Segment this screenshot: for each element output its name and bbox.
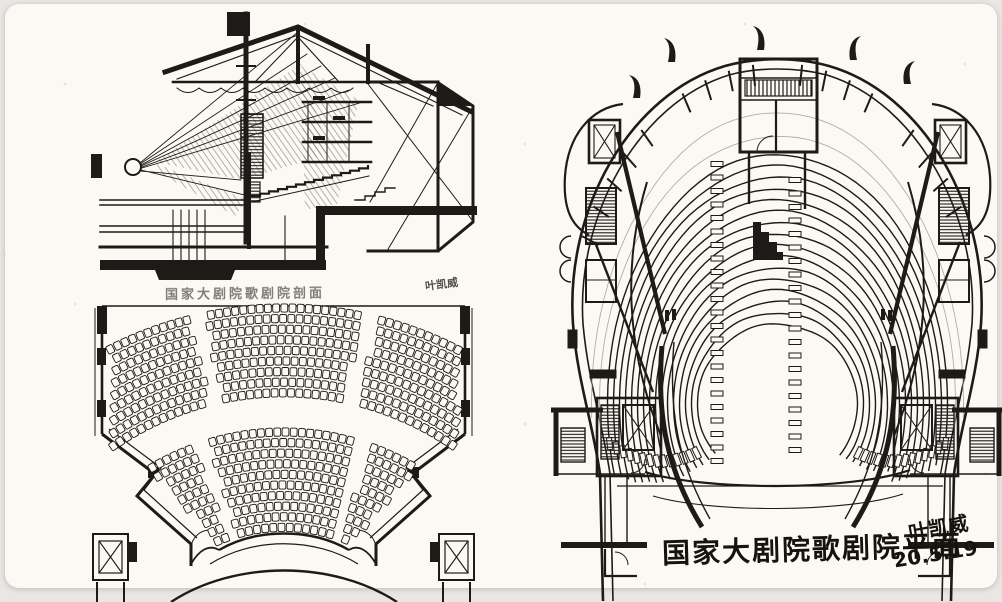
seat <box>247 316 255 325</box>
seat <box>378 382 387 392</box>
seat <box>310 451 318 460</box>
wall-mullion-tick <box>902 130 913 146</box>
seat <box>329 475 338 485</box>
seat <box>255 390 262 399</box>
seat <box>188 336 197 346</box>
seat <box>338 434 346 444</box>
seat <box>273 470 280 478</box>
seat <box>385 385 394 395</box>
seat <box>297 471 304 480</box>
seat <box>299 503 307 512</box>
seat <box>232 475 240 484</box>
seat <box>313 472 321 481</box>
seat <box>328 317 336 326</box>
seating-row-arc <box>674 279 882 472</box>
seat <box>265 471 272 480</box>
wall-mullion-tick <box>641 130 652 146</box>
seat <box>268 346 275 354</box>
seat <box>236 453 244 462</box>
seat <box>249 369 257 378</box>
seat <box>183 393 192 403</box>
seat <box>272 378 279 386</box>
seat <box>227 498 236 508</box>
seat <box>310 526 318 535</box>
seat <box>283 460 290 468</box>
seat <box>254 482 262 491</box>
seating-row-arc <box>692 314 864 460</box>
seat <box>167 320 176 330</box>
seat <box>328 519 337 529</box>
seat <box>267 460 274 469</box>
seat <box>326 529 335 539</box>
seat <box>288 315 295 323</box>
seat <box>173 329 182 339</box>
seat <box>285 492 292 500</box>
seat <box>219 340 227 349</box>
seat <box>305 471 313 480</box>
seat <box>325 496 334 506</box>
seat <box>401 323 410 333</box>
seat <box>280 438 287 446</box>
seat <box>264 378 271 387</box>
aisle-step-mark <box>711 229 723 234</box>
seat <box>368 390 377 400</box>
seat <box>330 509 339 519</box>
aisle-step-mark <box>640 453 647 466</box>
seating-row-arc <box>680 289 876 468</box>
seat <box>254 326 261 335</box>
seat <box>322 370 330 379</box>
seat <box>234 464 242 473</box>
seat <box>179 349 188 359</box>
seat <box>207 310 215 319</box>
seat <box>273 304 280 312</box>
aisle-step-mark <box>789 191 801 196</box>
seat <box>238 485 246 494</box>
seat <box>244 337 252 346</box>
seat <box>246 483 254 492</box>
seat <box>168 386 177 396</box>
seat <box>245 326 253 335</box>
seating-row-arc <box>632 200 924 483</box>
seat <box>338 372 346 381</box>
seat <box>375 404 384 414</box>
aisle-step-mark <box>789 286 801 291</box>
seat <box>339 467 348 477</box>
seat <box>183 315 192 325</box>
seat <box>237 528 246 538</box>
seat <box>244 451 252 460</box>
seat <box>250 358 258 367</box>
seat <box>350 342 358 351</box>
seat <box>235 349 243 358</box>
seat <box>371 369 380 379</box>
architectural-sketch <box>5 4 1002 602</box>
seat <box>242 462 250 471</box>
seat <box>214 320 222 329</box>
aisle-step-mark <box>789 434 801 439</box>
seat <box>271 438 278 446</box>
seat <box>332 498 341 508</box>
seat <box>232 371 240 380</box>
aisle-step-mark <box>908 453 915 466</box>
seat <box>388 363 397 373</box>
seat <box>299 357 306 366</box>
seat <box>336 318 344 327</box>
aisle-step-mark <box>633 451 640 464</box>
seat <box>238 316 246 325</box>
seat <box>300 347 307 356</box>
seat <box>322 431 330 440</box>
seat <box>333 350 341 359</box>
seat <box>235 496 243 506</box>
seat <box>293 336 300 344</box>
seat <box>263 439 270 448</box>
seat <box>291 502 298 511</box>
seat <box>321 306 329 315</box>
seat <box>252 493 260 502</box>
seat <box>214 446 223 456</box>
pencil-construction-arcs <box>592 113 964 451</box>
seat <box>383 406 392 416</box>
seat <box>398 344 407 354</box>
seat <box>278 523 285 531</box>
seat <box>289 378 296 386</box>
seat <box>229 328 237 337</box>
seat <box>314 430 322 439</box>
seat <box>182 404 191 414</box>
seat <box>269 336 276 344</box>
seat <box>290 368 297 376</box>
seat <box>323 359 331 368</box>
seat <box>218 467 227 477</box>
seat <box>370 380 379 390</box>
seat <box>206 321 214 330</box>
seat <box>352 321 360 330</box>
seat <box>372 358 381 368</box>
seat <box>263 389 270 398</box>
seat <box>228 454 236 463</box>
seat <box>283 502 290 510</box>
seat <box>274 502 281 510</box>
seat <box>229 486 238 496</box>
aisle-step-mark <box>711 243 723 248</box>
seat <box>230 392 238 401</box>
seat <box>260 492 268 501</box>
aisle-step-mark <box>711 364 723 369</box>
seat <box>407 336 416 346</box>
seat <box>288 389 295 397</box>
seat <box>220 456 229 466</box>
wall-mullion-tick <box>865 94 873 113</box>
seat <box>272 513 279 522</box>
orchestra-pit <box>171 530 397 602</box>
seat <box>317 495 325 504</box>
seat <box>311 483 319 492</box>
seat <box>233 360 241 369</box>
seat <box>289 304 296 312</box>
seat <box>377 316 386 326</box>
seat <box>290 428 297 436</box>
seat <box>384 395 393 405</box>
seat <box>308 461 316 470</box>
seat <box>323 463 331 472</box>
seat <box>374 348 383 358</box>
sketch-paper: 国家大剧院歌剧院剖面 叶凯威 国家大剧院歌剧院平面 叶凯威 20.5.19 <box>5 4 997 588</box>
aisle-step-mark <box>789 245 801 250</box>
seat <box>255 315 262 324</box>
seat <box>296 315 303 323</box>
seat <box>262 325 269 334</box>
seat <box>384 329 393 339</box>
seat <box>287 325 294 333</box>
seat <box>270 325 277 333</box>
seat <box>342 341 350 350</box>
aisle-step-mark <box>711 445 723 450</box>
seat <box>281 470 288 478</box>
seat <box>318 527 327 537</box>
seat <box>276 346 283 354</box>
aisle-step-mark <box>789 367 801 372</box>
seat <box>216 373 224 382</box>
seat <box>266 502 273 511</box>
seat <box>310 337 317 346</box>
seat <box>280 314 287 322</box>
seat <box>387 374 396 384</box>
seat <box>200 377 209 387</box>
aisle-step-mark <box>789 178 801 183</box>
stalls-seats <box>105 304 462 546</box>
seat <box>247 379 255 388</box>
seat <box>300 460 307 469</box>
aisle-step-mark <box>711 162 723 167</box>
seat <box>364 356 373 366</box>
seat <box>330 432 338 441</box>
seat <box>196 463 205 473</box>
seat <box>177 372 186 382</box>
seat <box>334 339 342 348</box>
seat <box>344 320 352 329</box>
seat <box>293 492 300 501</box>
seat <box>243 494 251 503</box>
seat <box>175 318 184 328</box>
seat <box>250 461 258 470</box>
aisle-step-mark <box>711 378 723 383</box>
seat <box>278 449 285 457</box>
seat <box>381 350 390 360</box>
seat <box>287 481 294 489</box>
seat <box>296 439 303 448</box>
seat <box>269 449 276 458</box>
seat <box>215 309 223 318</box>
seat <box>363 367 372 377</box>
seat <box>305 379 312 388</box>
aisle-step-mark <box>711 405 723 410</box>
seat <box>321 474 329 483</box>
seat <box>178 361 187 371</box>
seat <box>320 441 328 450</box>
seat <box>257 368 264 377</box>
seat <box>367 454 376 464</box>
seat <box>281 304 288 312</box>
seat <box>264 513 272 522</box>
seat <box>212 458 221 468</box>
seat <box>230 317 238 326</box>
seat <box>350 493 359 503</box>
seat <box>213 331 221 340</box>
aisle-step-mark <box>789 421 801 426</box>
seat <box>228 339 236 348</box>
seat <box>341 534 350 544</box>
seat <box>308 347 315 356</box>
seat <box>329 307 337 316</box>
seat <box>298 368 305 377</box>
seat <box>262 481 269 490</box>
seating-row-arc <box>600 137 956 452</box>
seat <box>271 315 278 323</box>
seat <box>253 525 261 534</box>
aisle-step-mark <box>711 256 723 261</box>
seat <box>311 326 318 335</box>
aisle-step-mark <box>711 324 723 329</box>
seat <box>375 337 384 347</box>
seat <box>385 318 394 328</box>
seat <box>263 315 270 324</box>
seat <box>275 357 282 365</box>
seat <box>180 338 189 348</box>
seat <box>170 363 179 373</box>
seat <box>294 524 301 533</box>
seat <box>390 342 399 352</box>
seat <box>337 477 346 487</box>
seat <box>163 354 172 364</box>
seat <box>335 488 344 498</box>
seat <box>187 347 196 357</box>
seat <box>171 352 180 362</box>
aisle-step-mark <box>711 189 723 194</box>
aisle-step-mark <box>789 394 801 399</box>
seat <box>248 472 256 481</box>
seat <box>279 481 286 489</box>
seat <box>166 331 175 341</box>
seat <box>379 371 388 381</box>
seat <box>258 357 265 366</box>
seat <box>289 470 296 478</box>
aisle-step-mark <box>711 459 723 464</box>
seat <box>236 338 244 347</box>
seat <box>408 325 417 335</box>
seat <box>221 488 230 498</box>
seat <box>150 337 159 347</box>
seat <box>233 507 242 517</box>
seat <box>353 311 361 320</box>
seat <box>240 473 248 482</box>
seat <box>304 389 311 398</box>
seat <box>305 304 312 313</box>
seat <box>223 383 231 392</box>
seat <box>296 513 304 522</box>
seat <box>158 334 167 344</box>
seat <box>238 391 246 400</box>
seat <box>256 379 263 388</box>
seat <box>169 375 178 385</box>
seat <box>162 366 171 376</box>
seat <box>191 390 200 400</box>
seat <box>341 457 350 467</box>
seat <box>233 432 241 441</box>
seat <box>314 505 322 514</box>
aisle-step-mark <box>789 259 801 264</box>
seat <box>239 306 247 315</box>
aisle-step-mark <box>915 451 922 464</box>
seat <box>238 441 246 450</box>
seat <box>296 389 303 398</box>
seat <box>242 359 250 368</box>
seat <box>270 523 277 532</box>
seat <box>192 379 201 389</box>
aisle-step-mark <box>711 351 723 356</box>
aisle-step-mark <box>711 418 723 423</box>
aisle-step-mark <box>711 216 723 221</box>
seat <box>277 491 284 499</box>
seat <box>176 384 185 394</box>
seat <box>218 351 226 360</box>
seat <box>304 439 312 448</box>
seat <box>159 322 168 332</box>
seat <box>190 454 199 464</box>
seat <box>221 329 229 338</box>
seat <box>249 504 257 513</box>
seat <box>303 482 311 491</box>
seat <box>346 436 355 446</box>
seat <box>225 361 233 370</box>
seat <box>319 484 327 493</box>
seat <box>312 390 320 399</box>
seat <box>274 368 281 376</box>
seat <box>247 440 255 449</box>
seat <box>198 399 207 409</box>
seat <box>261 524 269 533</box>
seat <box>261 336 268 345</box>
seat <box>320 391 328 400</box>
seat <box>241 505 249 514</box>
seat <box>321 380 329 389</box>
seat <box>224 433 232 442</box>
seat <box>261 450 268 459</box>
seat <box>330 371 338 380</box>
seat <box>222 319 230 328</box>
seat <box>271 389 278 397</box>
seat <box>392 331 401 341</box>
seat <box>291 460 298 469</box>
seat <box>399 334 408 344</box>
seat <box>241 430 249 439</box>
seat <box>361 388 370 398</box>
seat <box>255 514 263 523</box>
seat <box>376 393 385 403</box>
seat <box>151 325 160 335</box>
seat <box>301 492 309 501</box>
seat <box>394 377 403 387</box>
photo-frame: 国家大剧院歌剧院剖面 叶凯威 国家大剧院歌剧院平面 叶凯威 20.5.19 <box>0 0 1002 602</box>
aisle-step-mark <box>789 299 801 304</box>
aisle-step-mark <box>789 340 801 345</box>
aisle-step-mark <box>789 326 801 331</box>
seat <box>256 471 264 480</box>
seat <box>143 328 152 338</box>
seat <box>252 337 259 346</box>
seat <box>222 394 230 403</box>
